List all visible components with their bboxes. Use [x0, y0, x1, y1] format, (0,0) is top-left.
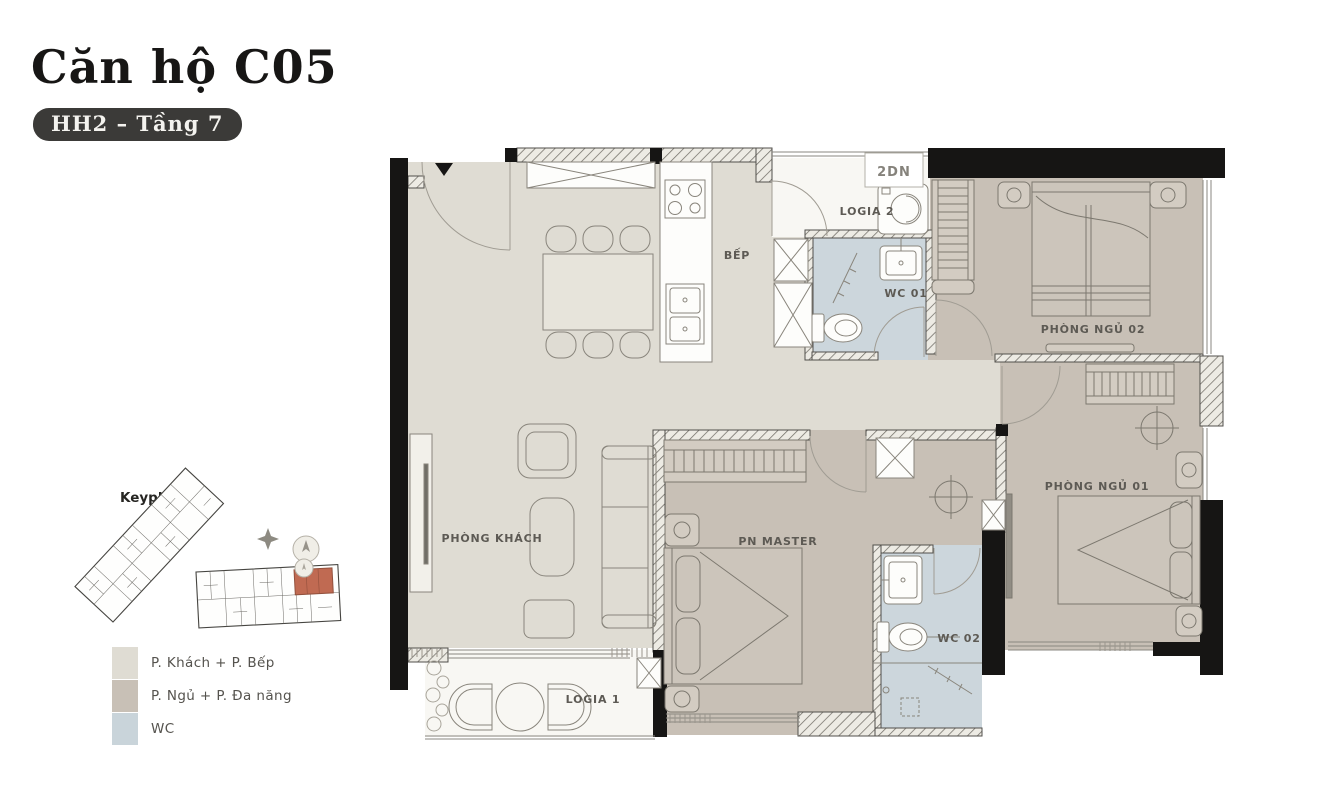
room-label-master: PN MASTER	[738, 535, 817, 548]
room-label-logia1: LOGIA 1	[566, 693, 621, 706]
room-label-bedroom2: PHÒNG NGỦ 02	[1041, 322, 1146, 336]
br1-nightstand-bottom	[1176, 606, 1202, 636]
room-label-living: PHÒNG KHÁCH	[441, 532, 542, 545]
room-label-wc1: WC 01	[884, 287, 927, 300]
room-label-logia2: LOGIA 2	[840, 205, 895, 218]
br2-nightstand-left	[998, 182, 1030, 208]
page: Căn hộ C05 HH2 – Tầng 7 P. Khách + P. Bế…	[0, 0, 1324, 798]
room-floor-corridor	[812, 358, 1002, 430]
master-wardrobe	[664, 440, 806, 482]
master-nightstand-top	[665, 514, 699, 546]
label-ac-unit: 2DN	[877, 165, 911, 180]
stove	[665, 180, 705, 218]
room-label-wc2: WC 02	[937, 632, 980, 645]
kitchen-sink	[666, 284, 704, 344]
master-bed	[664, 548, 802, 684]
br2-bench	[1046, 344, 1134, 352]
br1-wardrobe	[1086, 364, 1174, 404]
tv	[424, 464, 428, 564]
br2-nightstand-right	[1150, 182, 1186, 208]
kitchen-counter	[660, 162, 712, 362]
room-label-kitchen: BẾP	[724, 247, 750, 262]
br1-nightstand-top	[1176, 452, 1202, 488]
keyplan-wing-horizontal	[196, 565, 341, 628]
keyplan-map: Keyplan	[75, 468, 341, 628]
br1-bed	[1058, 496, 1200, 604]
room-floor-living	[408, 162, 660, 648]
floorplan: BẾP LOGIA 2 2DN WC 01 PHÒNG NGỦ 02 PHÒNG…	[0, 0, 1324, 798]
master-nightstand-bottom	[665, 686, 699, 712]
br1-tv	[1006, 494, 1012, 598]
room-label-bedroom1: PHÒNG NGỦ 01	[1045, 479, 1150, 493]
wc1-toilet	[812, 314, 862, 342]
tv-console	[410, 434, 432, 592]
